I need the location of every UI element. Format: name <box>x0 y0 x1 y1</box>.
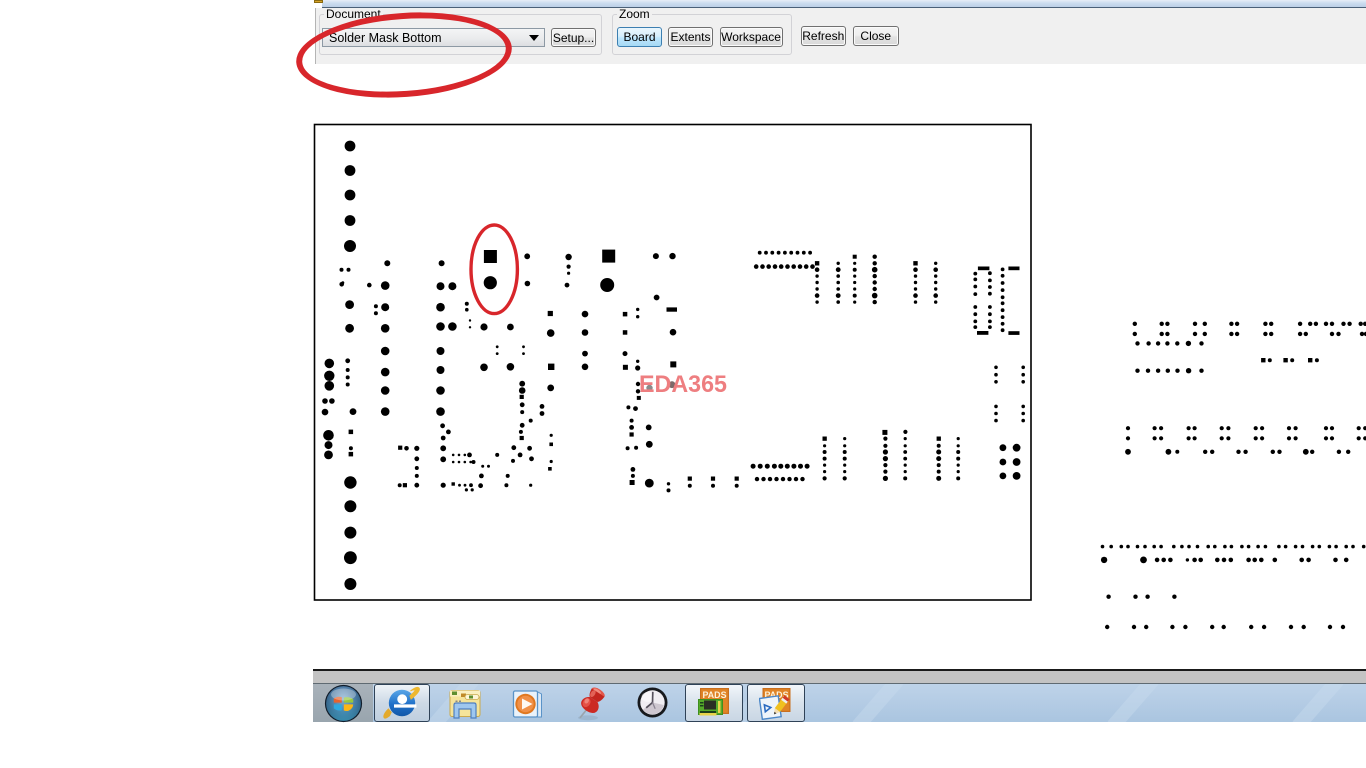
svg-text:EDA365: EDA365 <box>639 371 727 398</box>
